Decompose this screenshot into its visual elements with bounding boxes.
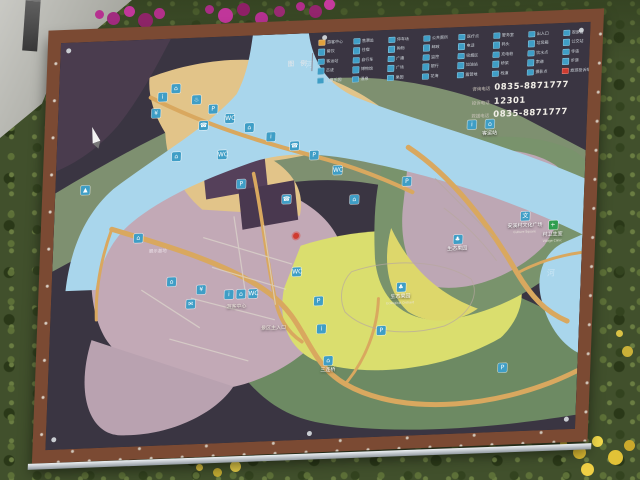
legend-symbol-icon bbox=[423, 44, 430, 51]
legend-item: 旅游投诉举报 bbox=[562, 65, 591, 76]
legend-symbol-icon bbox=[318, 39, 325, 46]
legend-symbol-icon bbox=[493, 51, 500, 58]
legend-label: 古迹 bbox=[326, 67, 334, 73]
legend-label: 垃圾箱 bbox=[536, 40, 548, 46]
legend-label: 温泉 bbox=[360, 76, 368, 82]
legend-symbol-icon bbox=[563, 29, 570, 36]
legend-symbol-icon bbox=[317, 77, 324, 84]
legend-label: 加油站 bbox=[466, 62, 478, 68]
map-text: 河 bbox=[545, 268, 556, 278]
legend-label: 购物 bbox=[396, 46, 404, 52]
legend-label: 吸烟区 bbox=[466, 52, 478, 58]
legend-label: 医疗点 bbox=[467, 33, 479, 39]
map-panel: 图 例 游客中心 售票处 bbox=[45, 22, 590, 450]
magenta-flowers bbox=[95, 10, 104, 19]
legend-label: 花海 bbox=[430, 73, 438, 79]
photo-scene: 图 例 游客中心 售票处 bbox=[0, 0, 640, 480]
legend-symbol-icon bbox=[353, 47, 360, 54]
legend-symbol-icon bbox=[387, 74, 394, 81]
contact-row: 投诉电话 12301 bbox=[472, 93, 569, 107]
legend-symbol-icon bbox=[458, 52, 465, 59]
legend-label: 广场 bbox=[396, 65, 404, 71]
legend-label: 果园 bbox=[395, 74, 403, 80]
legend-label: 出入口 bbox=[537, 30, 549, 36]
legend-label: 住宿 bbox=[362, 47, 370, 53]
legend-symbol-icon bbox=[457, 72, 464, 79]
legend-label: 监控 bbox=[431, 54, 439, 60]
legend-label: 充电桩 bbox=[501, 51, 513, 57]
legend-symbol-icon bbox=[457, 62, 464, 69]
legend-symbol-icon bbox=[563, 39, 570, 46]
magenta-flowers bbox=[205, 5, 214, 14]
legend-symbol-icon bbox=[318, 58, 325, 65]
legend-label: 公共厕所 bbox=[432, 34, 448, 41]
legend-symbol-icon bbox=[562, 67, 569, 74]
legend-symbol-icon bbox=[423, 54, 430, 61]
legend-item: 露营地 bbox=[457, 69, 490, 80]
magenta-flowers bbox=[296, 2, 305, 11]
foreground-bush bbox=[0, 418, 640, 480]
legend-label: 露营地 bbox=[465, 71, 477, 77]
legend-label: 邮政 bbox=[431, 44, 439, 50]
legend-symbol-icon bbox=[493, 42, 500, 49]
legend-symbol-icon bbox=[352, 66, 359, 73]
legend-label: 索道 bbox=[536, 59, 544, 65]
contact-row: 救援电话 0835-8871777 bbox=[471, 107, 568, 121]
legend-symbol-icon bbox=[458, 43, 465, 50]
map-text: 展示基地 bbox=[149, 248, 167, 255]
legend-label: 博物馆 bbox=[361, 66, 373, 72]
legend-symbol-icon bbox=[387, 65, 394, 72]
map-board: 图 例 游客中心 售票处 bbox=[32, 8, 604, 463]
contact-number: 0835-8871777 bbox=[493, 107, 568, 120]
legend-label: 游客中心 bbox=[327, 39, 343, 46]
contact-label: 投诉电话 bbox=[472, 99, 490, 106]
contact-number: 0835-8871777 bbox=[494, 80, 569, 93]
legend-label: 桥梁 bbox=[501, 60, 509, 66]
legend-item: 果园 bbox=[387, 72, 420, 83]
legend-symbol-icon bbox=[317, 68, 324, 75]
legend-label: 饮水点 bbox=[536, 49, 548, 55]
legend-label: 餐饮 bbox=[327, 48, 335, 54]
contact-info: 咨询电话 0835-8871777 投诉电话 12301 救援电话 0835-8… bbox=[471, 80, 569, 124]
legend-label: 自行车 bbox=[361, 56, 373, 62]
legend-symbol-icon bbox=[528, 40, 535, 47]
legend-label: 观景台 bbox=[572, 29, 584, 35]
legend-label: 码头 bbox=[501, 41, 509, 47]
legend-symbol-icon bbox=[527, 50, 534, 57]
legend-label: 警务室 bbox=[502, 32, 514, 38]
legend-symbol-icon bbox=[527, 69, 534, 76]
legend-label: 银行 bbox=[431, 63, 439, 69]
legend-label: 停车场 bbox=[397, 36, 409, 42]
yellow-flowers bbox=[616, 330, 623, 337]
contact-number: 12301 bbox=[494, 95, 526, 106]
legend-symbol-icon bbox=[422, 73, 429, 80]
legend-symbol-icon bbox=[527, 59, 534, 66]
legend-symbol-icon bbox=[388, 46, 395, 53]
legend-symbol-icon bbox=[353, 57, 360, 64]
legend-item: 花海 bbox=[422, 70, 455, 81]
legend-label: 摄影点 bbox=[535, 68, 547, 74]
contact-label: 咨询电话 bbox=[472, 86, 490, 93]
legend-symbol-icon bbox=[492, 61, 499, 68]
legend-symbol-icon bbox=[458, 33, 465, 40]
map-text: 景区主入口 bbox=[261, 324, 286, 332]
map-text: 游客中心 bbox=[226, 302, 246, 310]
legend-symbol-icon bbox=[422, 63, 429, 70]
legend-label: 儿童乐园 bbox=[325, 77, 341, 84]
legend-symbol-icon bbox=[388, 55, 395, 62]
legend-label: 售票处 bbox=[362, 37, 374, 43]
legend-symbol-icon bbox=[318, 49, 325, 56]
legend-symbol-icon bbox=[353, 38, 360, 45]
legend-item: 温泉 bbox=[352, 73, 385, 84]
legend-symbol-icon bbox=[493, 32, 500, 39]
legend-label: 公交站 bbox=[571, 38, 583, 44]
legend-label: 寺庙 bbox=[571, 48, 579, 54]
legend-symbol-icon bbox=[352, 76, 359, 83]
legend-label: 广播 bbox=[396, 55, 404, 61]
legend-symbol-icon bbox=[388, 36, 395, 43]
legend-item: 儿童乐园 bbox=[317, 75, 350, 86]
contact-label: 救援电话 bbox=[471, 113, 489, 120]
legend-symbol-icon bbox=[492, 70, 499, 77]
legend-label: 电话 bbox=[466, 43, 474, 49]
legend-title: 图 例 bbox=[287, 53, 313, 72]
legend-symbol-icon bbox=[528, 31, 535, 38]
legend-symbol-icon bbox=[562, 48, 569, 55]
legend-label: 旅游投诉举报 bbox=[570, 67, 590, 74]
legend-symbol-icon bbox=[562, 58, 569, 65]
legend-item: 栈道 bbox=[492, 68, 525, 79]
legend-label: 栈道 bbox=[500, 70, 508, 76]
legend-label: 客运站 bbox=[326, 58, 338, 64]
legend-symbol-icon bbox=[423, 35, 430, 42]
legend-item: 摄影点 bbox=[527, 66, 560, 77]
legend-label: 步道 bbox=[571, 58, 579, 64]
